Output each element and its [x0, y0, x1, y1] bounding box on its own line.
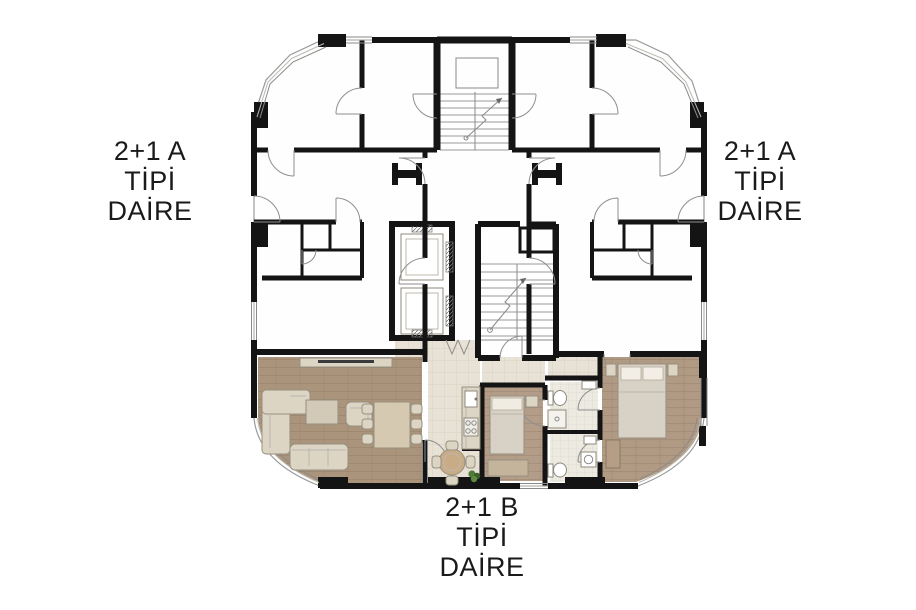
- label-line: 2+1 A: [40, 136, 260, 166]
- label-line: DAİRE: [650, 196, 870, 226]
- sofa: [290, 444, 348, 470]
- label-apartment-left: 2+1 A TİPİ DAİRE: [40, 136, 260, 226]
- stove: [464, 418, 478, 436]
- tv-unit: [300, 358, 392, 367]
- label-line: TİPİ: [40, 166, 260, 196]
- dining-table: [362, 402, 422, 448]
- label-line: DAİRE: [372, 552, 592, 582]
- label-apartment-right: 2+1 A TİPİ DAİRE: [650, 136, 870, 226]
- washing-machine: [581, 452, 596, 467]
- nightstand: [606, 364, 616, 376]
- sink: [582, 381, 596, 389]
- wardrobe: [606, 440, 620, 468]
- kitchen: [462, 387, 480, 449]
- round-table: [439, 449, 465, 475]
- floorplan-page: 2+1 A TİPİ DAİRE 2+1 A TİPİ DAİRE 2+1 B …: [0, 0, 916, 610]
- label-line: 2+1 A: [650, 136, 870, 166]
- toilet-icon: [548, 463, 567, 477]
- bed: [618, 364, 666, 438]
- wardrobe: [488, 460, 528, 476]
- label-apartment-bottom: 2+1 B TİPİ DAİRE: [372, 492, 592, 582]
- toilet-icon: [548, 391, 567, 406]
- label-line: DAİRE: [40, 196, 260, 226]
- sink: [584, 436, 596, 444]
- nightstand: [668, 364, 678, 376]
- label-line: TİPİ: [372, 522, 592, 552]
- coffee-table: [306, 400, 338, 424]
- label-line: TİPİ: [650, 166, 870, 196]
- nightstand: [526, 396, 538, 407]
- shower: [548, 410, 566, 428]
- label-line: 2+1 B: [372, 492, 592, 522]
- bed: [490, 396, 524, 454]
